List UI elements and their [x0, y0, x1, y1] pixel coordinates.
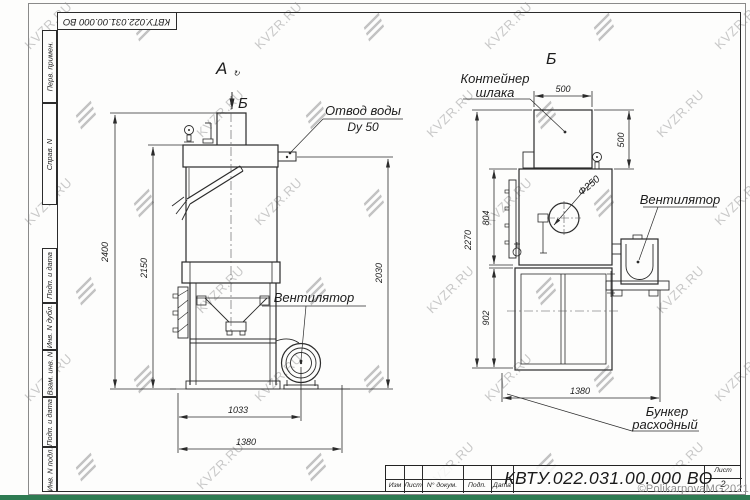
- dim-804: 804: [481, 210, 491, 225]
- view-a-section-letter: Б: [238, 95, 248, 112]
- view-a-label: А: [215, 59, 227, 78]
- dim-1380-b: 1380: [570, 386, 590, 396]
- view-b-linework: [505, 110, 669, 393]
- tb-col-list: Лист: [404, 482, 422, 489]
- dim-500-top: 500: [555, 84, 570, 94]
- view-a-rotation-mark: ↻: [233, 69, 240, 78]
- callout-fan-b: Вентилятор: [640, 192, 721, 207]
- tb-col-doc: N° докум.: [427, 482, 457, 489]
- callout-water-line2: Dy 50: [347, 120, 379, 134]
- callout-container-line1: Контейнер: [461, 71, 530, 86]
- callout-hopper-line2: расходный: [631, 417, 697, 432]
- dim-500-right: 500: [616, 132, 626, 147]
- copyright-watermark: ©PolikarpovaMG2021: [638, 483, 749, 495]
- dim-1033: 1033: [228, 405, 248, 415]
- view-a-dimensions: [110, 92, 403, 453]
- dim-1380-a: 1380: [236, 437, 256, 447]
- callout-fan-a: Вентилятор: [274, 290, 355, 305]
- callout-water-line1: Отвод воды: [325, 103, 401, 118]
- bottom-green-bar: [0, 495, 750, 500]
- callout-container-line2: шлака: [476, 85, 515, 100]
- drawing-canvas: А ↻ Б 2400 2150 2030 1033 1380 Отвод вод…: [0, 0, 750, 500]
- dim-2400: 2400: [100, 242, 110, 263]
- tb-sheet-label: Лист: [704, 467, 742, 474]
- tb-col-podp: Подп.: [468, 482, 486, 489]
- dim-902: 902: [481, 310, 491, 325]
- view-b-dimensions: [463, 91, 717, 431]
- view-b-label: Б: [546, 51, 556, 68]
- dim-2270: 2270: [463, 230, 473, 251]
- dim-2150: 2150: [139, 258, 149, 279]
- view-a-linework: [170, 96, 350, 389]
- dim-2030: 2030: [374, 263, 384, 284]
- tb-col-izm: Изм: [389, 482, 402, 489]
- dim-diameter-250: Ф250: [576, 174, 602, 199]
